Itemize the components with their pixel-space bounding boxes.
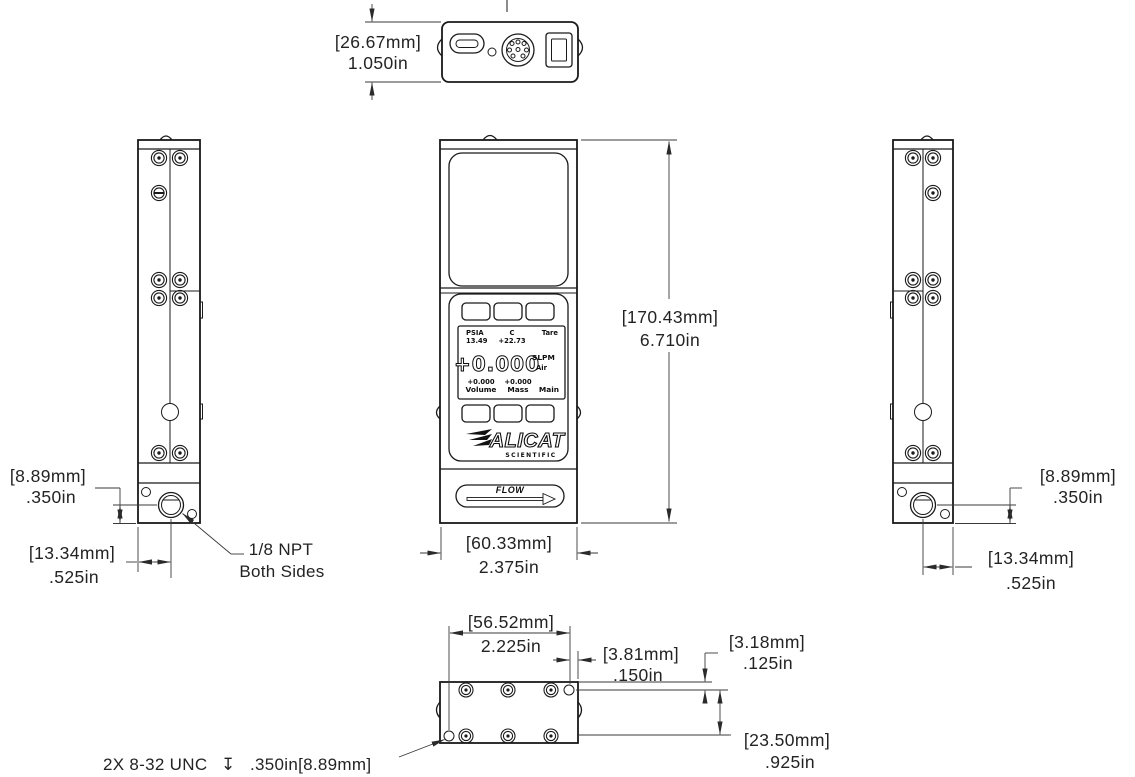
- depth-symbol-icon: ↧: [221, 755, 236, 774]
- dim-port-height-left: [8.89mm] .350in: [10, 466, 157, 524]
- npt-port: [159, 493, 184, 518]
- dim-port-offset-left: [13.34mm] .525in: [29, 519, 171, 587]
- right-side-view: [891, 136, 954, 523]
- din-connector-icon: [502, 34, 534, 66]
- dim-port-height-right-in: .350in: [1053, 487, 1103, 507]
- mounting-hole: [188, 510, 197, 519]
- dim-front-width-in: 2.375in: [479, 557, 539, 577]
- gas-label: Air: [536, 364, 548, 372]
- logo-subtext: SCIENTIFIC: [505, 452, 556, 459]
- usb-port-icon: [450, 34, 484, 53]
- dim-bottom-top-offset: [3.18mm] .125in: [576, 632, 805, 698]
- dim-bottom-edge-mm: [3.81mm]: [603, 644, 679, 664]
- dim-front-width: [60.33mm] 2.375in: [420, 527, 598, 577]
- tare-label: Tare: [542, 329, 559, 337]
- screw-icon: [172, 150, 187, 165]
- screw-icon: [905, 445, 920, 460]
- dim-height: [170.43mm] 6.710in: [581, 140, 718, 523]
- temp-label: C: [510, 329, 515, 337]
- mounting-hole: [142, 488, 151, 497]
- screw-icon: [151, 445, 166, 460]
- flow-value: +0.000: [454, 352, 540, 376]
- screw-icon: [925, 290, 940, 305]
- engineering-drawing: [26.67mm] 1.050in PSIA 13.49 C +22.73 Ta…: [0, 0, 1135, 777]
- screw-icon: [501, 729, 515, 743]
- button-icon: [526, 303, 554, 320]
- screw-icon: [925, 272, 940, 287]
- flow-marking: FLOW: [456, 485, 564, 507]
- alignment-hole: [162, 404, 179, 421]
- rect-connector-icon: [546, 33, 572, 67]
- screw-icon: [151, 272, 166, 287]
- logo-feather-icon: [466, 429, 492, 435]
- flow-label: FLOW: [496, 485, 525, 495]
- mounting-hole: [941, 510, 950, 519]
- screw-icon: [172, 445, 187, 460]
- dim-top-width: [26.67mm] 1.050in: [335, 4, 441, 100]
- dim-height-in: 6.710in: [640, 330, 700, 350]
- device-display: PSIA 13.49 C +22.73 Tare +0.000 SLPM Air…: [454, 326, 565, 399]
- alignment-hole: [915, 404, 932, 421]
- dim-port-offset-left-in: .525in: [49, 567, 99, 587]
- dim-bottom-top-offset-in: .125in: [743, 653, 793, 673]
- temp-value: +22.73: [498, 337, 525, 345]
- npt-note: 1/8 NPT Both Sides: [183, 514, 325, 582]
- screw-icon: [544, 729, 558, 743]
- button-icon: [462, 405, 490, 422]
- screw-icon: [925, 150, 940, 165]
- dim-port-height-right: [8.89mm] .350in: [937, 466, 1116, 524]
- screw-icon: [172, 272, 187, 287]
- volume-label: Volume: [466, 385, 497, 394]
- npt-note-line2: Both Sides: [239, 562, 324, 581]
- screw-icon: [905, 150, 920, 165]
- dim-front-width-mm: [60.33mm]: [466, 533, 552, 553]
- dim-bottom-rows: [23.50mm] .925in: [579, 691, 830, 772]
- mass-label: Mass: [507, 385, 529, 394]
- slotted-screw-icon: [151, 185, 166, 200]
- dim-port-height-left-mm: [8.89mm]: [10, 466, 86, 486]
- dim-port-offset-right: [13.34mm] .525in: [923, 519, 1074, 593]
- mounting-hole: [898, 488, 907, 497]
- left-side-view: [138, 136, 203, 523]
- alicat-logo: ALICAT SCIENTIFIC: [466, 429, 566, 459]
- dim-bottom-span-mm: [56.52mm]: [468, 612, 554, 632]
- flow-unit: SLPM: [532, 353, 555, 362]
- tapped-hole: [444, 731, 454, 741]
- dim-bottom-edge: [3.81mm] .150in: [553, 644, 679, 685]
- screw-icon: [925, 185, 940, 200]
- dim-bottom-rows-in: .925in: [765, 752, 815, 772]
- top-view: [438, 0, 583, 82]
- screw-icon: [459, 729, 473, 743]
- tapped-hole: [564, 685, 574, 695]
- pressure-value: 13.49: [466, 337, 488, 345]
- screw-icon: [544, 683, 558, 697]
- dim-port-height-right-mm: [8.89mm]: [1040, 466, 1116, 486]
- flow-arrow-shaft: [467, 498, 543, 501]
- left-body: [138, 140, 200, 523]
- dim-port-offset-left-mm: [13.34mm]: [29, 543, 115, 563]
- front-view: PSIA 13.49 C +22.73 Tare +0.000 SLPM Air…: [437, 136, 581, 524]
- button-row-top: [462, 303, 554, 320]
- dim-port-offset-right-mm: [13.34mm]: [988, 548, 1074, 568]
- upper-panel: [449, 153, 568, 286]
- logo-feather-icon: [469, 434, 492, 440]
- button-icon: [494, 303, 522, 320]
- dim-bottom-span-in: 2.225in: [481, 636, 541, 656]
- screw-icon: [925, 445, 940, 460]
- dim-bottom-top-offset-mm: [3.18mm]: [729, 632, 805, 652]
- dim-bottom-rows-mm: [23.50mm]: [744, 730, 830, 750]
- logo-text: ALICAT: [489, 430, 566, 452]
- button-icon: [526, 405, 554, 422]
- screw-icon: [151, 290, 166, 305]
- screw-icon: [501, 683, 515, 697]
- screw-icon: [459, 683, 473, 697]
- thread-note-depth: .350in[8.89mm]: [250, 755, 371, 774]
- screw-icon: [172, 290, 187, 305]
- dim-top-width-in: 1.050in: [348, 53, 408, 73]
- flow-arrow-head-icon: [543, 494, 555, 505]
- button-row-bottom: [462, 405, 554, 422]
- thread-note: 2X 8-32 UNC ↧ .350in[8.89mm]: [103, 740, 445, 775]
- button-icon: [494, 405, 522, 422]
- main-label: Main: [539, 385, 559, 394]
- dim-top-width-mm: [26.67mm]: [335, 32, 421, 52]
- dim-height-mm: [170.43mm]: [622, 307, 718, 327]
- dim-port-offset-right-in: .525in: [1006, 573, 1056, 593]
- dim-bottom-span: [56.52mm] 2.225in: [449, 612, 570, 730]
- button-icon: [462, 303, 490, 320]
- dim-port-height-left-in: .350in: [26, 487, 76, 507]
- bottom-view: [437, 682, 582, 743]
- led-indicator-icon: [488, 48, 496, 56]
- thread-note-spec: 2X 8-32 UNC: [103, 755, 207, 774]
- pressure-label: PSIA: [466, 329, 484, 337]
- screw-icon: [905, 290, 920, 305]
- screw-icon: [151, 150, 166, 165]
- npt-port: [911, 493, 936, 518]
- screw-icon: [905, 272, 920, 287]
- npt-note-line1: 1/8 NPT: [249, 540, 313, 559]
